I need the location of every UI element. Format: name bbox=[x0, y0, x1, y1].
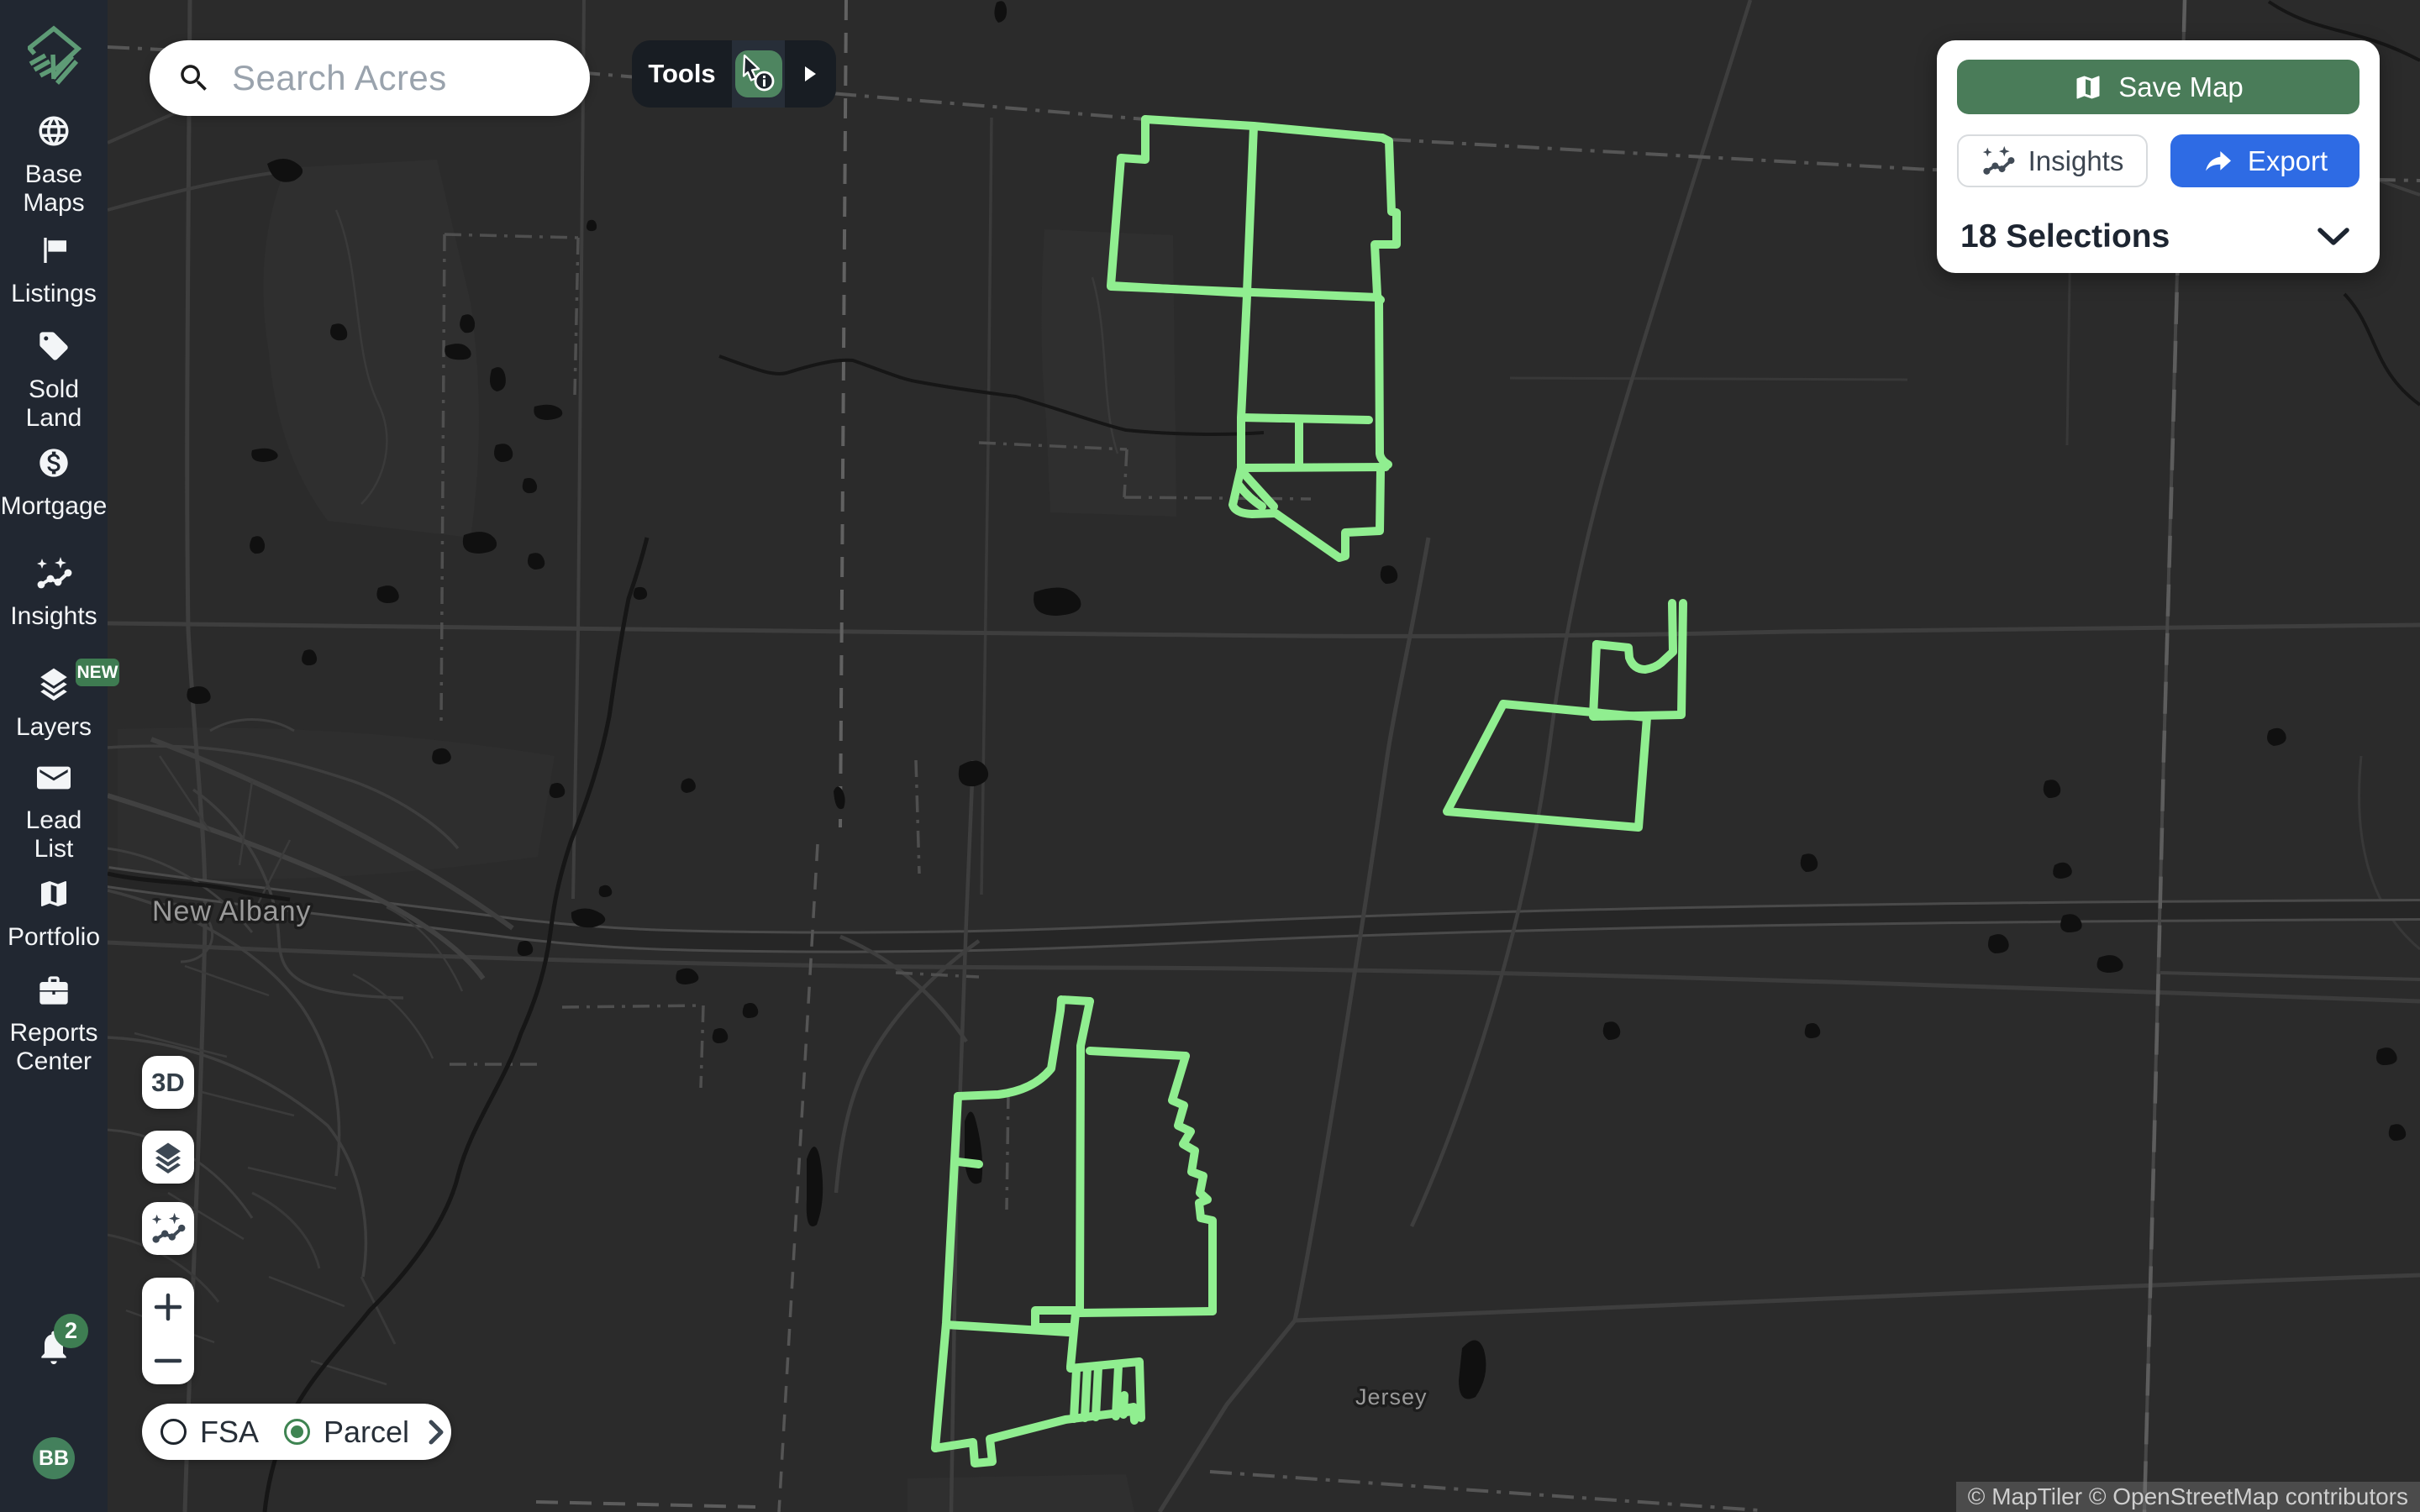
svg-text:Jersey: Jersey bbox=[1355, 1384, 1428, 1410]
svg-text:New Albany: New Albany bbox=[152, 895, 312, 927]
